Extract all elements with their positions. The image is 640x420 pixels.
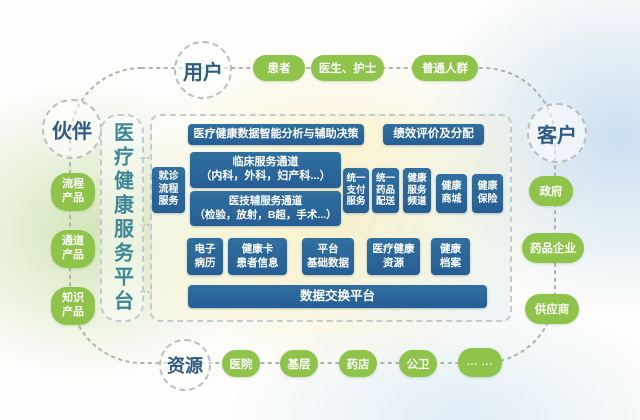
box-medtech-channel: 医技辅服务通道 （检验，放射，B超，手术...） bbox=[190, 191, 341, 226]
node-partners: 伙伴 bbox=[42, 99, 102, 159]
box-health-archive: 健康 档案 bbox=[431, 238, 470, 275]
node-users-label: 用户 bbox=[183, 56, 223, 85]
pill-knowledge-product: 知识 产品 bbox=[51, 287, 95, 325]
box-base-data: 平台 基础数据 bbox=[302, 238, 354, 275]
platform-title-strip: 医疗健康服务平台 bbox=[100, 114, 144, 322]
pill-supplier: 供应商 bbox=[525, 294, 579, 324]
box-med-resources: 医疗健康 资源 bbox=[367, 238, 420, 275]
box-visit-flow: 就诊 流程 服务 bbox=[152, 167, 185, 213]
node-resources-label: 资源 bbox=[167, 352, 203, 378]
box-health-card: 健康卡 患者信息 bbox=[228, 238, 287, 275]
box-clinical-channel: 临床服务通道 （内科，外科，妇产科...） bbox=[190, 152, 341, 188]
box-performance: 绩效评价及分配 bbox=[383, 124, 484, 145]
box-health-mall: 健康 商城 bbox=[436, 174, 467, 213]
pill-public-health: 公卫 bbox=[399, 350, 437, 377]
box-emr: 电子 病历 bbox=[187, 238, 223, 275]
pill-government: 政府 bbox=[529, 176, 573, 206]
platform-title: 医疗健康服务平台 bbox=[108, 122, 137, 314]
node-resources: 资源 bbox=[159, 339, 211, 391]
box-data-exchange: 数据交换平台 bbox=[188, 285, 487, 308]
box-analytics: 医疗健康数据智能分析与辅助决策 bbox=[188, 124, 364, 145]
node-customers-label: 客户 bbox=[537, 119, 577, 148]
pill-process-product: 流程 产品 bbox=[51, 173, 95, 211]
box-unified-drug: 统一 药品 配送 bbox=[372, 168, 399, 213]
box-unified-pay: 统一 支付 服务 bbox=[343, 168, 369, 213]
node-users: 用户 bbox=[174, 41, 232, 99]
box-health-channel: 健康 服务 频道 bbox=[403, 168, 431, 213]
pill-patient: 患者 bbox=[253, 55, 305, 81]
pill-hospital: 医院 bbox=[222, 350, 260, 377]
pill-doctor-nurse: 医生、护士 bbox=[311, 55, 384, 81]
diagram-canvas: 用户 伙伴 客户 资源 患者 医生、护士 普通人群 流程 产品 通道 产品 知识… bbox=[0, 0, 640, 420]
pill-pharma-company: 药品企业 bbox=[522, 233, 584, 263]
pill-grassroots: 基层 bbox=[280, 350, 318, 377]
pill-ellipsis: ... ... bbox=[458, 348, 502, 377]
pill-channel-product: 通道 产品 bbox=[51, 230, 95, 268]
pill-general-public: 普通人群 bbox=[412, 55, 478, 81]
node-customers: 客户 bbox=[527, 103, 587, 163]
node-partners-label: 伙伴 bbox=[52, 115, 92, 144]
box-health-insurance: 健康 保险 bbox=[472, 174, 503, 213]
pill-pharmacy: 药店 bbox=[339, 350, 377, 377]
